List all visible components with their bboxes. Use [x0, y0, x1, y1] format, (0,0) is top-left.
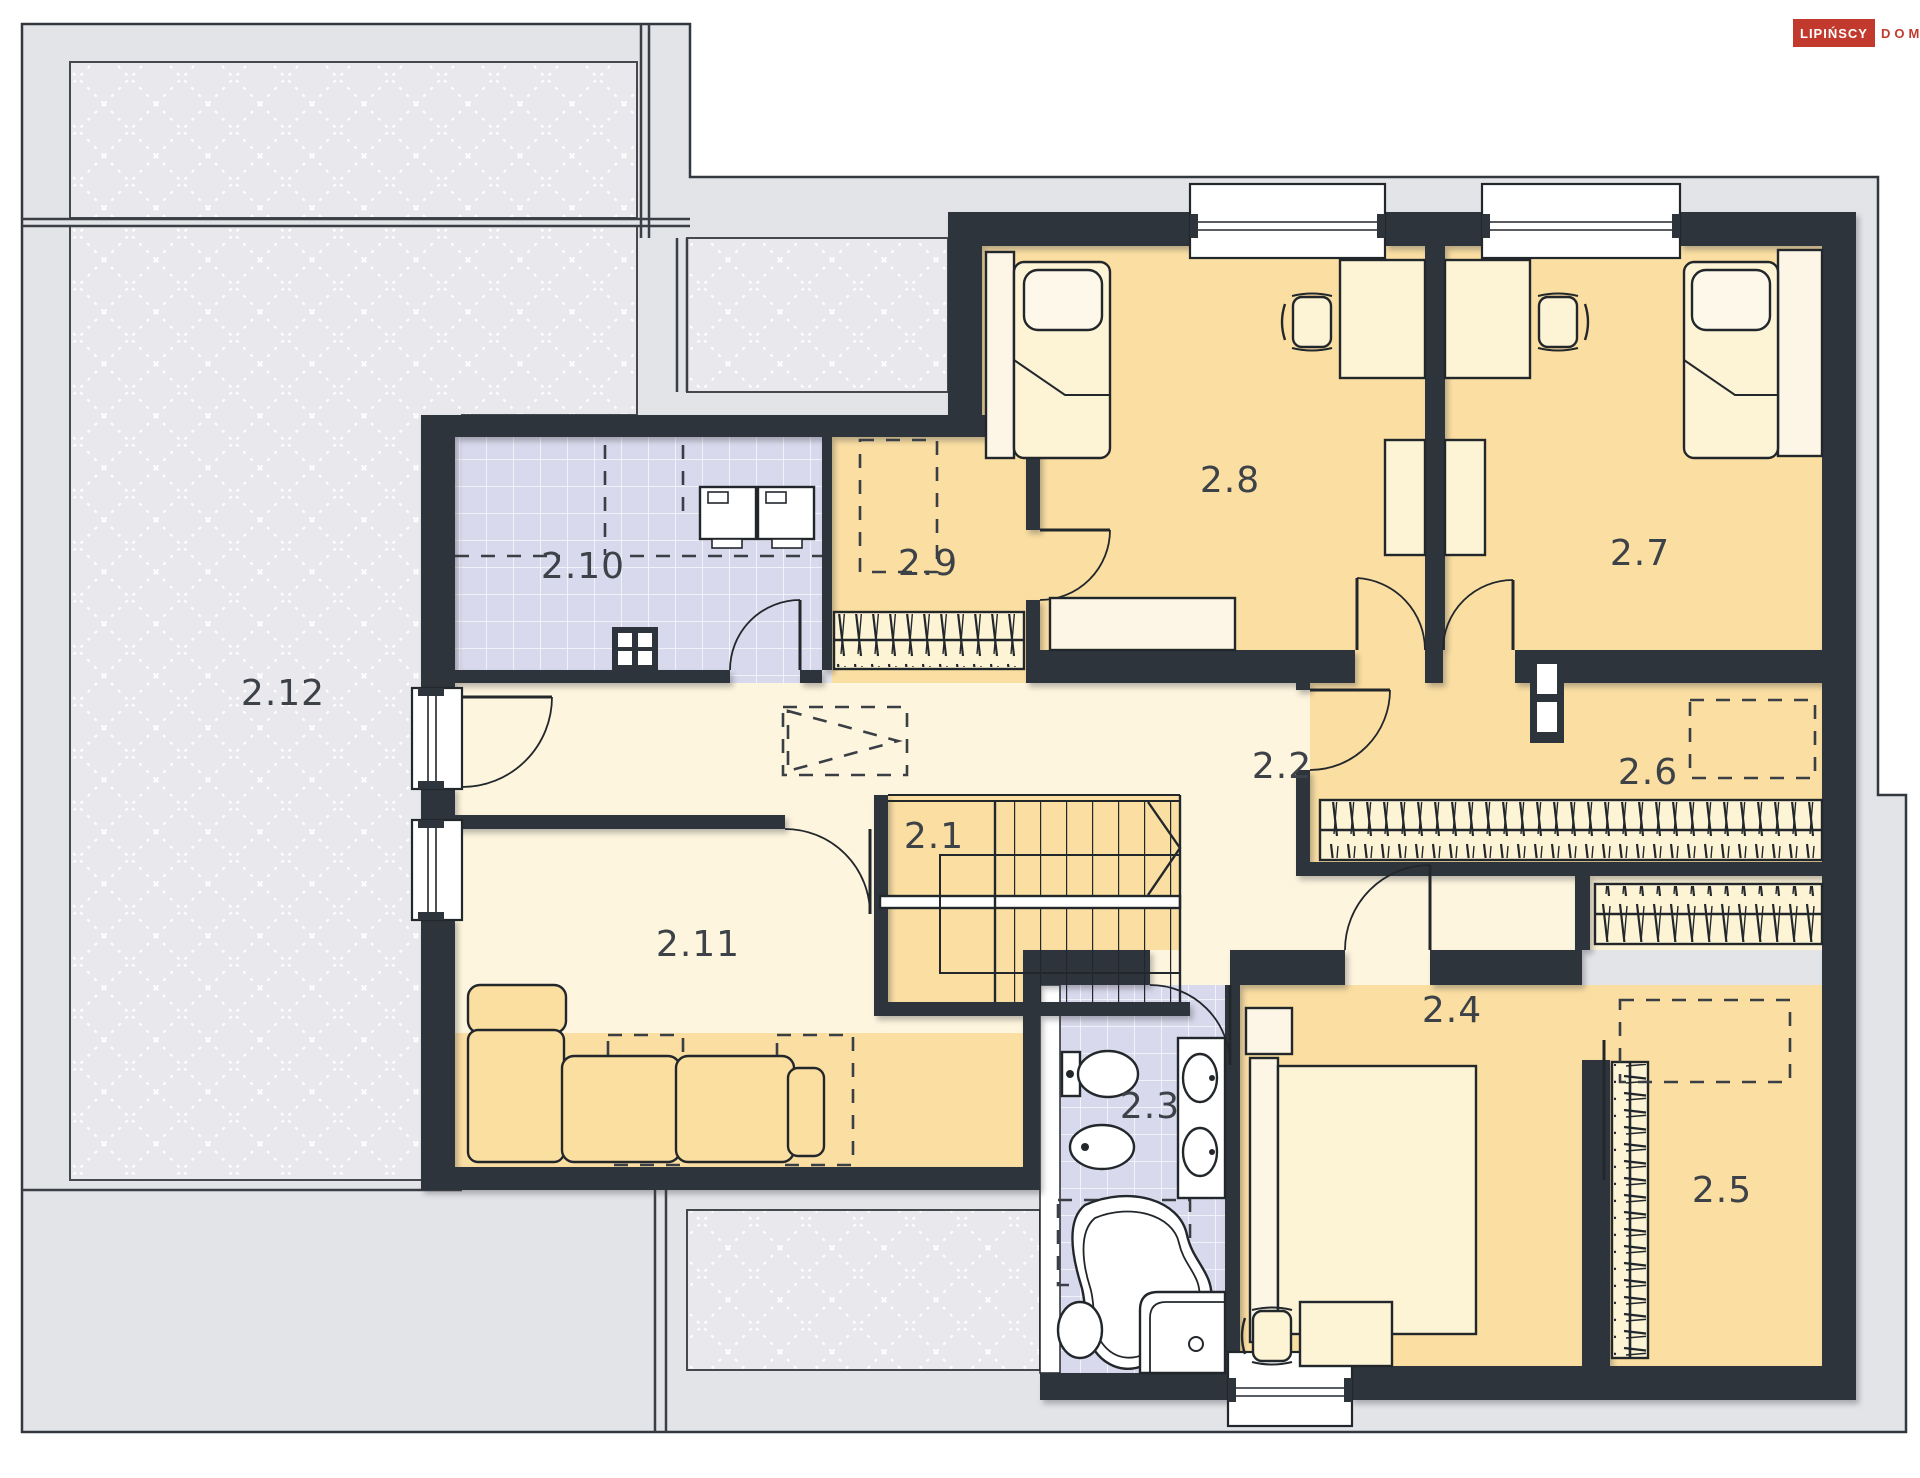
cabinet-2-7: [1445, 440, 1485, 555]
window-2-11-west: [412, 820, 462, 920]
window-2-7: [1482, 184, 1680, 258]
floor-2-2-top: [874, 683, 1180, 795]
window-corridor-west: [412, 688, 462, 789]
room-label-2-9: 2.9: [898, 543, 958, 584]
floorplan-drawing: 2.1 2.2 2.3 2.4 2.5 2.6 2.7 2.8 2.9 2.10…: [0, 0, 1920, 1478]
rail-closet-nook: [1595, 884, 1822, 944]
threshold-2-7: [1443, 650, 1515, 683]
room-label-2-6: 2.6: [1618, 752, 1678, 793]
shower-2-3: [1140, 1292, 1225, 1373]
threshold-2-10: [730, 670, 800, 683]
threshold-2-8: [1355, 650, 1425, 683]
room-label-2-5: 2.5: [1692, 1170, 1752, 1211]
duct-strip: [1040, 985, 1060, 1373]
room-label-2-4: 2.4: [1422, 990, 1482, 1031]
chimney-2-6: [1530, 655, 1564, 743]
rail-2-6: [1320, 800, 1822, 860]
bidet-2-3: [1070, 1125, 1134, 1169]
rail-2-9: [834, 612, 1024, 669]
stair-handrail: [880, 896, 1180, 908]
brand-logo-primary: LIPIŃSCY: [1793, 19, 1875, 47]
floor-2-2-corridor: [455, 683, 874, 815]
room-label-2-8: 2.8: [1200, 460, 1260, 501]
threshold-2-9: [1026, 530, 1040, 600]
stair-treads-lower: [995, 908, 1180, 1002]
roof-hatch-panel-center: [687, 238, 948, 392]
room-label-2-11: 2.11: [656, 924, 740, 965]
stair-treads-upper: [995, 800, 1180, 897]
chimney-2-10: [612, 627, 658, 671]
window-2-8: [1190, 184, 1385, 258]
roof-hatch-panel-bottom: [687, 1210, 1040, 1370]
desk-2-4: [1242, 1302, 1392, 1366]
room-label-2-7: 2.7: [1610, 533, 1670, 574]
floor-2-2-column: [1180, 683, 1296, 950]
floor-2-2-threshold-211: [785, 815, 874, 829]
sinks-2-10: [700, 487, 814, 548]
threshold-2-4: [1345, 950, 1430, 985]
floor-2-4-passage: [1582, 985, 1610, 1060]
room-label-2-3: 2.3: [1120, 1086, 1180, 1127]
floorplan-page: 2.1 2.2 2.3 2.4 2.5 2.6 2.7 2.8 2.9 2.10…: [0, 0, 1920, 1478]
room-label-2-1: 2.1: [904, 816, 964, 857]
brand-logo-secondary: DOMY: [1875, 19, 1920, 47]
roof-hatch-panel-top-left: [70, 62, 637, 218]
room-label-2-10: 2.10: [541, 546, 625, 587]
bed-2-7: [1684, 250, 1822, 458]
double-sink-2-3: [1178, 1038, 1225, 1198]
sideboard-2-8: [1050, 598, 1235, 650]
room-label-2-12: 2.12: [241, 673, 325, 714]
bed-2-8: [986, 252, 1110, 458]
cabinet-2-8: [1385, 440, 1425, 555]
floor-2-2-east: [1296, 876, 1575, 950]
brand-logo: LIPIŃSCY DOMY: [1793, 19, 1920, 47]
room-label-2-2: 2.2: [1252, 746, 1312, 787]
